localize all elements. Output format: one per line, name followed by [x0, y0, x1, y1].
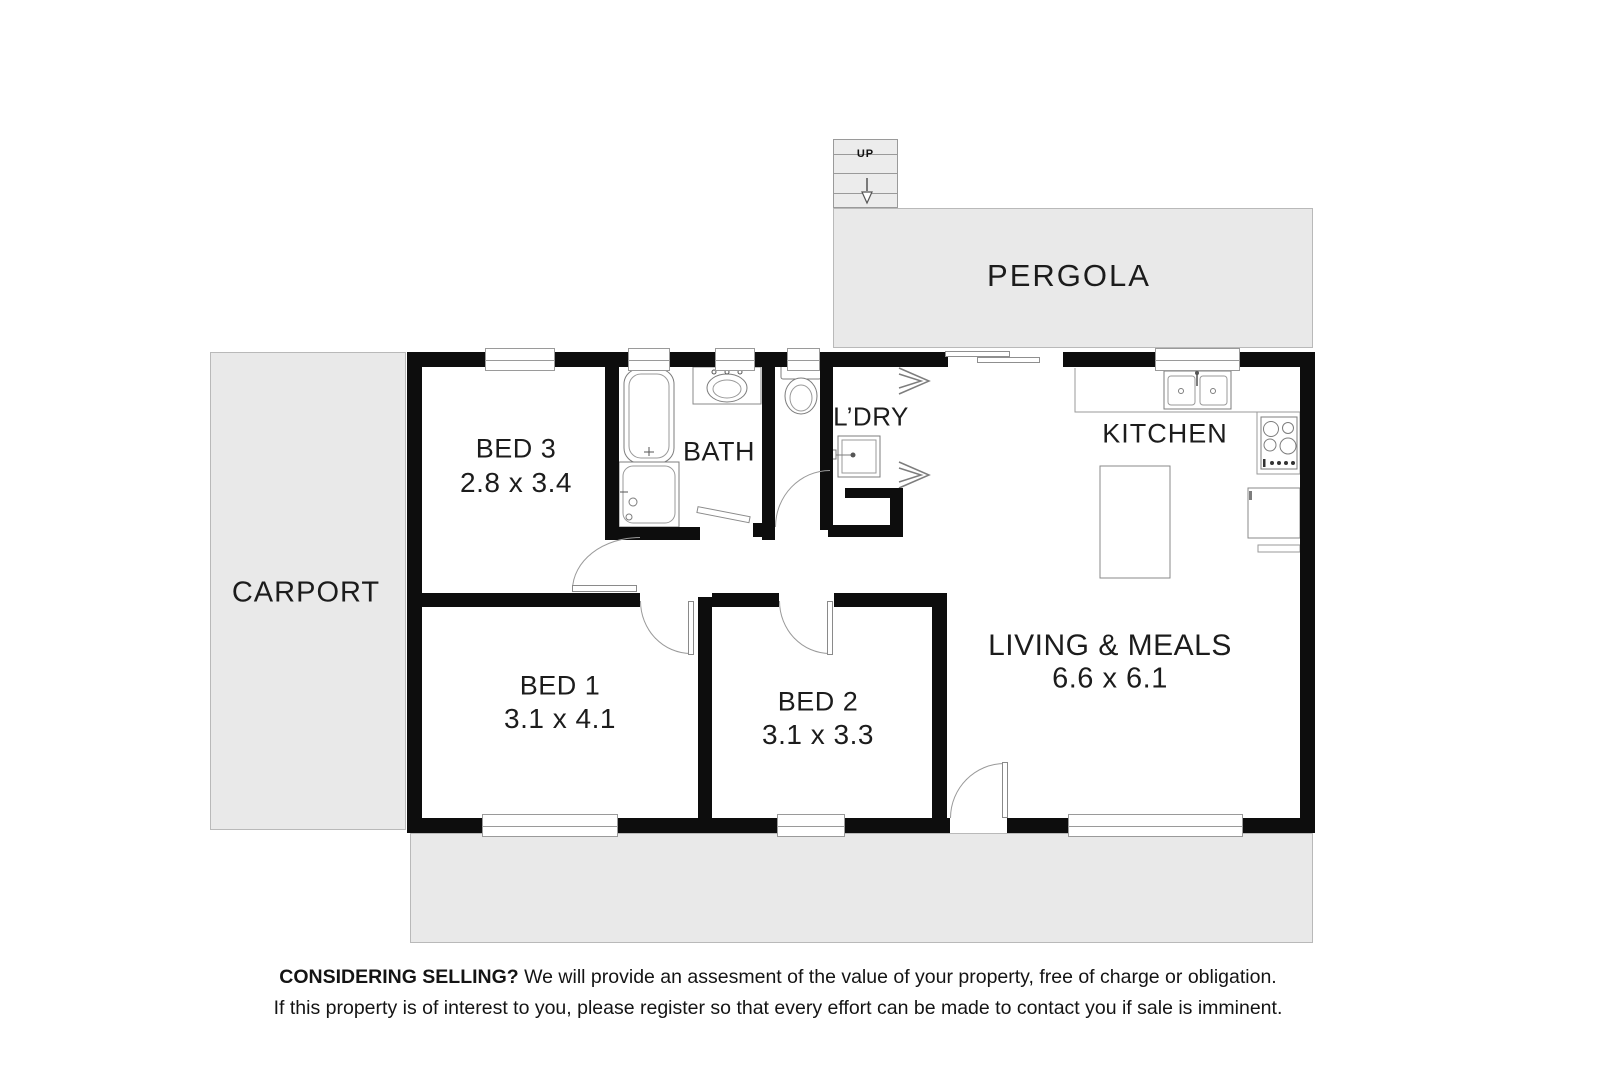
window: [715, 348, 755, 371]
wall: [1007, 818, 1068, 833]
room-label-living: LIVING & MEALS: [988, 629, 1232, 663]
door-leaf: [1002, 762, 1008, 818]
wall: [407, 593, 640, 607]
room-dims-bed3: 2.8 x 3.4: [460, 467, 572, 499]
wall: [762, 367, 775, 540]
window: [482, 814, 618, 837]
room-label-bed1: BED 1: [520, 671, 601, 702]
wall: [753, 523, 775, 537]
room-label-pergola: PERGOLA: [987, 258, 1151, 294]
stair-tread: [834, 173, 897, 174]
window: [787, 348, 820, 371]
wall: [698, 597, 712, 833]
wall: [834, 593, 932, 607]
room-label-bed3: BED 3: [476, 434, 557, 465]
window: [628, 348, 670, 371]
window: [777, 814, 845, 837]
room-dims-living: 6.6 x 6.1: [1052, 663, 1168, 696]
wall: [890, 488, 903, 537]
door-leaf: [572, 585, 637, 592]
room-label-laundry: L’DRY: [833, 402, 909, 433]
wall: [712, 593, 779, 607]
wall: [1300, 352, 1315, 833]
wall: [407, 818, 482, 833]
window: [1068, 814, 1243, 837]
room-label-carport: CARPORT: [232, 577, 380, 610]
window: [1155, 348, 1240, 371]
door-leaf: [827, 601, 833, 655]
footer-line1-bold: CONSIDERING SELLING?: [279, 966, 518, 988]
stairs-down-arrow-icon: [860, 176, 874, 206]
wall: [605, 367, 619, 540]
room-dims-bed2: 3.1 x 3.3: [762, 719, 874, 751]
staircase: UP: [833, 139, 898, 208]
wall: [555, 352, 628, 367]
wall: [605, 527, 700, 540]
footer-line1-rest: We will provide an assesment of the valu…: [519, 966, 1277, 988]
wall: [407, 352, 485, 367]
room-label-bath: BATH: [683, 437, 755, 468]
wall: [755, 352, 787, 367]
wall: [932, 593, 947, 818]
wall: [1063, 352, 1155, 367]
room-label-kitchen: KITCHEN: [1102, 419, 1228, 450]
room-dims-bed1: 3.1 x 4.1: [504, 703, 616, 735]
door-leaf: [688, 601, 694, 655]
wall: [1243, 818, 1315, 833]
wall: [670, 352, 715, 367]
patio-area: [410, 833, 1313, 943]
wall: [820, 352, 948, 367]
footer-line2: If this property is of interest to you, …: [0, 993, 1556, 1024]
wall: [1240, 352, 1315, 367]
footer-line1: CONSIDERING SELLING? We will provide an …: [0, 962, 1556, 993]
floor-plan-canvas: UP: [0, 0, 1621, 1080]
wall: [845, 818, 950, 833]
window: [485, 348, 555, 371]
room-label-bed2: BED 2: [778, 687, 859, 718]
sliding-door: [977, 357, 1040, 363]
stairs-up-label: UP: [834, 148, 897, 160]
footer-disclaimer: CONSIDERING SELLING? We will provide an …: [0, 962, 1556, 1024]
